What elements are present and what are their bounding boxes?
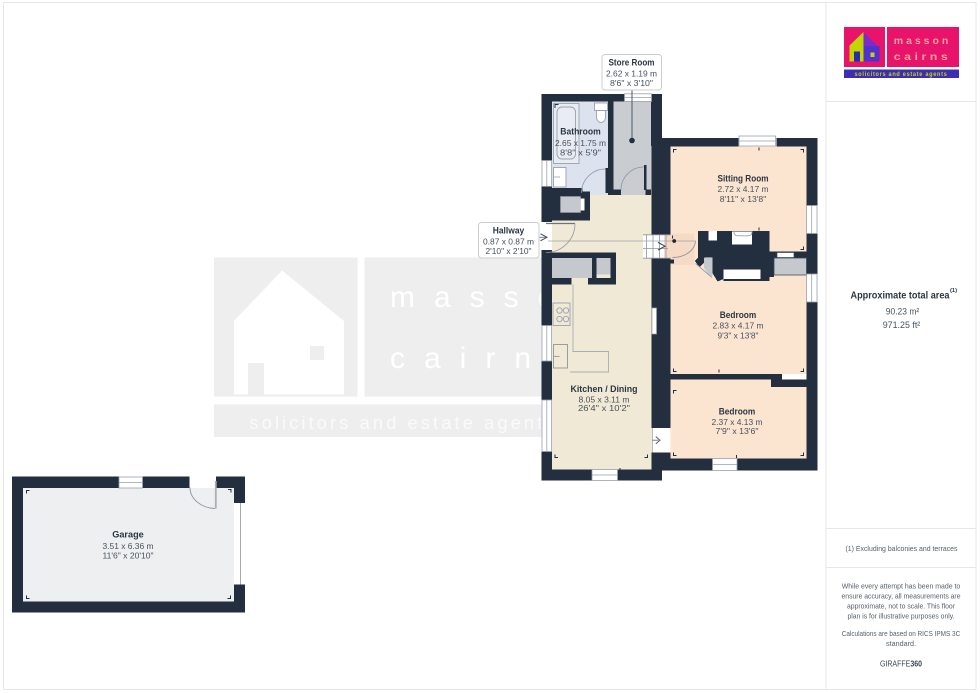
- svg-text:Store Room: Store Room: [609, 58, 655, 68]
- svg-text:GIRAFFE360: GIRAFFE360: [880, 659, 922, 669]
- svg-text:Bedroom: Bedroom: [719, 407, 756, 417]
- svg-text:8'11" x 13'8": 8'11" x 13'8": [720, 194, 767, 204]
- svg-text:971.25 ft²: 971.25 ft²: [883, 320, 921, 330]
- svg-text:2.72 x 4.17 m: 2.72 x 4.17 m: [718, 184, 769, 194]
- svg-text:8'6" x 3'10": 8'6" x 3'10": [610, 78, 653, 88]
- svg-text:Calculations are based on RICS: Calculations are based on RICS IPMS 3C: [842, 629, 961, 638]
- svg-text:90.23 m²: 90.23 m²: [886, 307, 920, 317]
- svg-text:approximate, not to scale. Thi: approximate, not to scale. This floor: [847, 602, 956, 611]
- svg-text:11'6" x 20'10": 11'6" x 20'10": [103, 550, 154, 560]
- svg-text:8'8" x 5'9": 8'8" x 5'9": [560, 148, 601, 158]
- svg-text:standard.: standard.: [886, 639, 916, 648]
- svg-text:(1) Excluding balconies and te: (1) Excluding balconies and terraces: [846, 544, 958, 553]
- svg-text:Approximate total area: Approximate total area: [851, 290, 950, 302]
- svg-text:Garage: Garage: [112, 530, 144, 540]
- svg-text:masson: masson: [894, 36, 952, 47]
- svg-text:Hallway: Hallway: [493, 226, 525, 236]
- svg-text:Bedroom: Bedroom: [720, 310, 757, 320]
- svg-text:26'4" x 10'2": 26'4" x 10'2": [578, 403, 630, 413]
- svg-text:(1): (1): [950, 288, 957, 294]
- svg-text:solicitors and estate agents: solicitors and estate agents: [249, 412, 557, 433]
- svg-text:ensure accuracy, all measureme: ensure accuracy, all measurements are: [842, 592, 961, 601]
- svg-text:Bathroom: Bathroom: [560, 127, 601, 137]
- svg-text:Sitting Room: Sitting Room: [718, 174, 769, 184]
- svg-text:Kitchen / Dining: Kitchen / Dining: [571, 384, 638, 394]
- svg-text:cairns: cairns: [894, 52, 952, 63]
- svg-text:2.83 x 4.17 m: 2.83 x 4.17 m: [713, 321, 764, 331]
- svg-text:7'9" x 13'6": 7'9" x 13'6": [716, 426, 759, 436]
- svg-text:solicitors and estate agents: solicitors and estate agents: [855, 71, 948, 78]
- svg-text:2'10" x 2'10": 2'10" x 2'10": [486, 246, 532, 256]
- svg-text:2.65 x 1.75 m: 2.65 x 1.75 m: [555, 138, 606, 148]
- svg-text:While every attempt has been m: While every attempt has been made to: [842, 582, 961, 591]
- svg-text:9'3" x 13'8": 9'3" x 13'8": [718, 331, 759, 341]
- svg-text:plan is for illustrative purpo: plan is for illustrative purposes only.: [848, 612, 955, 621]
